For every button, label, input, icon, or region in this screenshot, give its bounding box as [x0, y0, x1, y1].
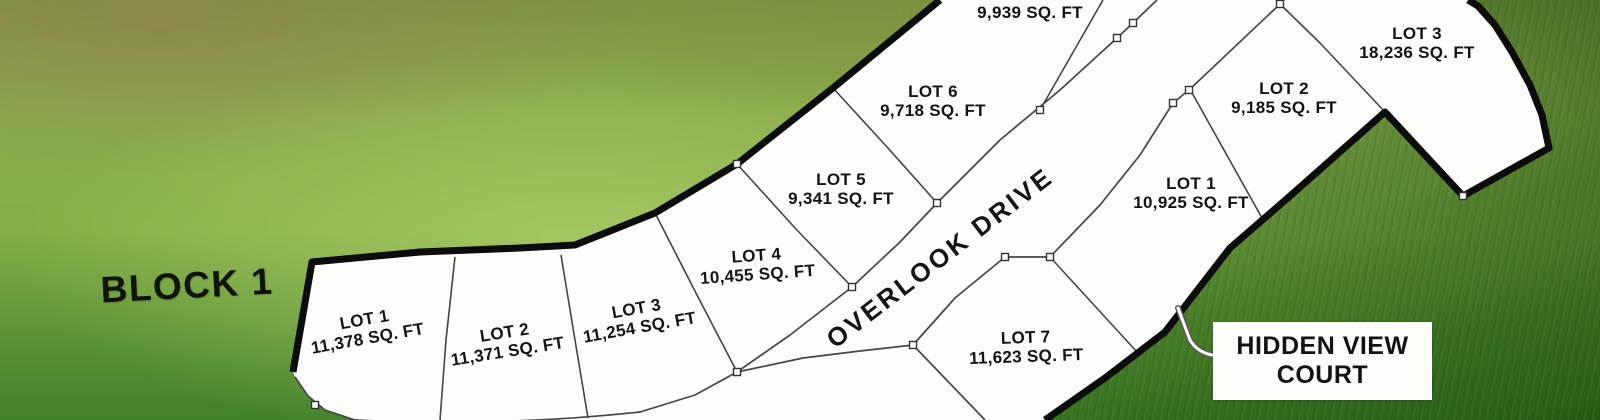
- lot-label-b2-lot1: LOT 1 10,925 SQ. FT: [1133, 174, 1248, 212]
- lot-label-b1-lot5: LOT 5 9,341 SQ. FT: [788, 170, 894, 208]
- lot-label-b1-lot4: LOT 4 10,455 SQ. FT: [698, 242, 816, 288]
- lot-label-b2-lot7: LOT 7 11,623 SQ. FT: [968, 326, 1084, 368]
- lot-name: LOT 1: [1133, 174, 1248, 193]
- court-leader-line: [1178, 308, 1218, 356]
- lot-label-b1-lot7: LOT 7 9,939 SQ. FT: [977, 0, 1083, 22]
- lot-name: LOT 5: [788, 170, 894, 189]
- plat-map-scene: BLOCK 1 LOT 1 11,378 SQ. FT LOT 2 11,371…: [0, 0, 1600, 420]
- court-label-line1: HIDDEN VIEW: [1236, 332, 1408, 361]
- lot-label-b2-lot2: LOT 2 9,185 SQ. FT: [1231, 79, 1337, 117]
- lot-name: LOT 3: [1359, 24, 1474, 43]
- hidden-view-court-label: HIDDEN VIEW COURT: [1213, 322, 1432, 400]
- lot-area: 9,341 SQ. FT: [788, 189, 894, 208]
- lot-area: 9,939 SQ. FT: [977, 3, 1083, 22]
- lot-area: 18,236 SQ. FT: [1359, 43, 1474, 62]
- lot-name: LOT 6: [880, 82, 986, 101]
- lot-area: 9,718 SQ. FT: [880, 101, 986, 120]
- lot-area: 11,623 SQ. FT: [969, 345, 1084, 368]
- court-label-line2: COURT: [1277, 361, 1368, 390]
- lot-label-b1-lot6: LOT 6 9,718 SQ. FT: [880, 82, 986, 120]
- lot-name: LOT 2: [1231, 79, 1337, 98]
- lot-label-b2-lot3: LOT 3 18,236 SQ. FT: [1359, 24, 1474, 62]
- lot-area: 9,185 SQ. FT: [1231, 98, 1337, 117]
- lot-area: 10,925 SQ. FT: [1133, 193, 1248, 212]
